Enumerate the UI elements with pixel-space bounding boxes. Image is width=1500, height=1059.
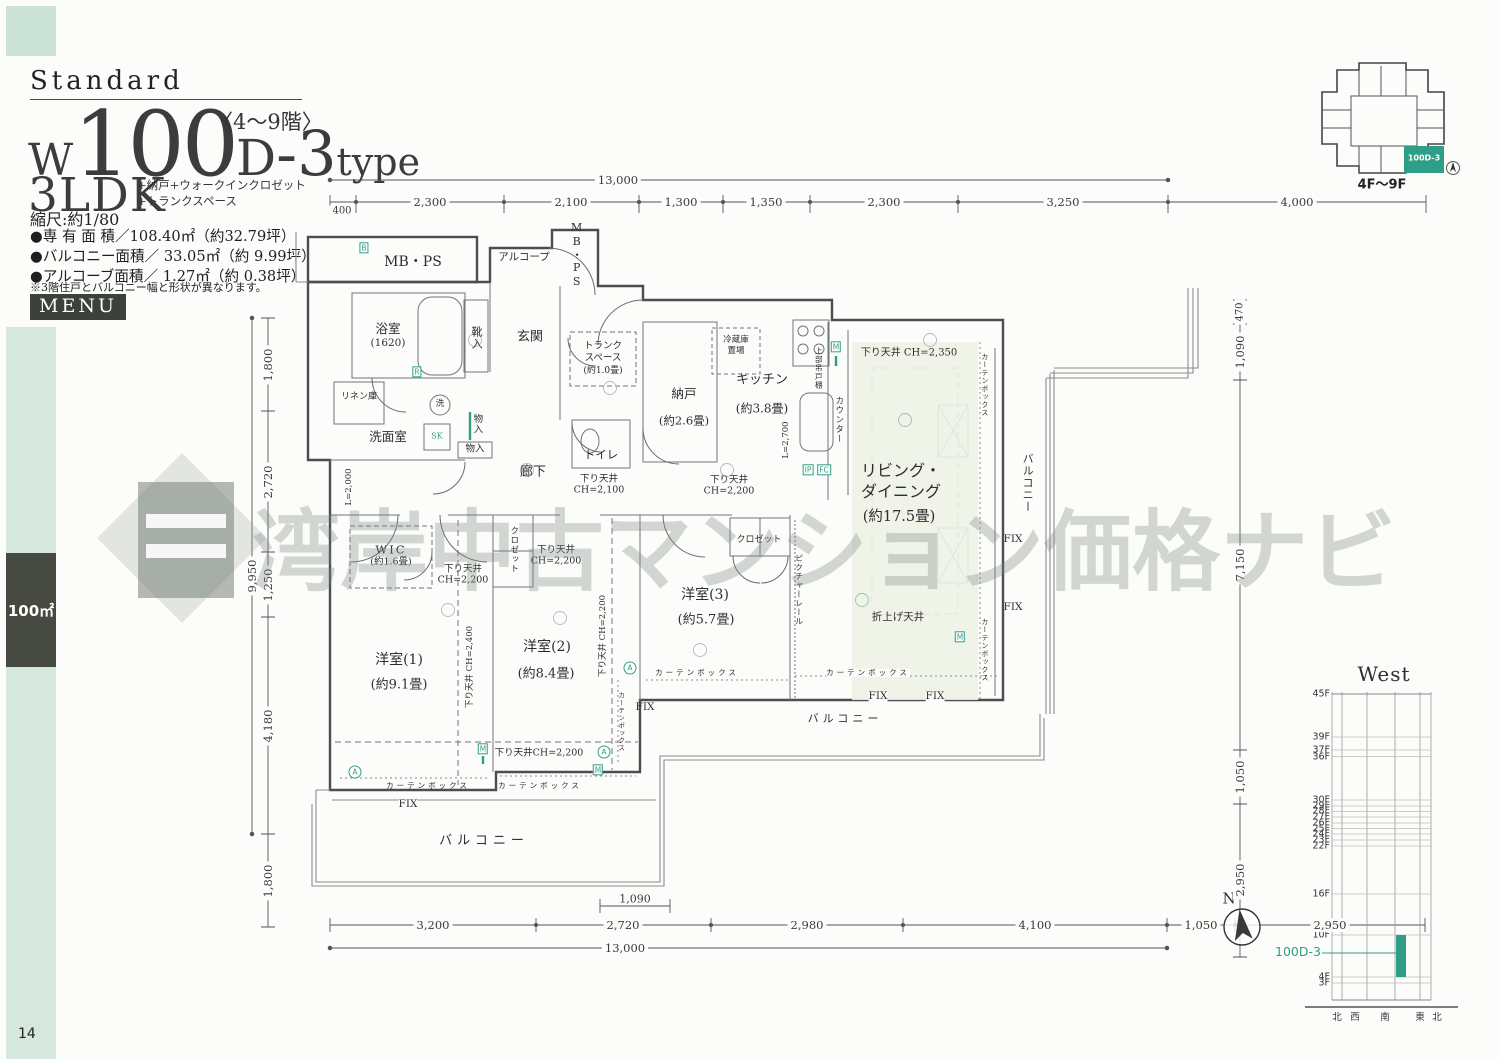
dim-left-1250: 1,250 [261,566,275,605]
dim-right-7150: 7,150 [1233,546,1247,585]
room-trunk-line1: トランク [584,342,622,353]
dim-left-2720: 2,720 [261,463,275,502]
dim-bottom-2720: 2,720 [604,918,643,932]
marker-m-3: M [478,743,488,754]
elevation-unit-label: 100D-3 [1275,945,1321,959]
room-bath-size: (1620) [371,338,406,350]
elevation-dir-south: 南 [1380,1009,1390,1023]
dim-bottom-3200: 3,200 [414,918,453,932]
closet-monoire-vertical: 物入 [471,414,482,435]
dim-top-total: 13,000 [595,173,641,187]
dim-left-9950: 9,950 [245,557,259,596]
room-powder: 洗面室 [369,430,407,444]
room-western3-size: (約5.7畳) [678,614,735,629]
dim-left-1800b: 1,800 [261,862,275,901]
room-toilet: トイレ [584,449,619,462]
picture-rail-label: ピクチャーレール [794,554,803,626]
drop-ceiling-2200a-l2: CH=2,200 [704,487,755,498]
room-western3: 洋室(3) [681,588,729,604]
menu-button[interactable]: MENU [30,294,126,320]
dim-right-470: 470 [1235,299,1246,324]
room-nando: 納戸 [671,387,696,401]
fix-label-6: FIX [1004,602,1023,614]
dim-bottom-2950: 2,950 [1311,918,1350,932]
elevation-dir-east: 東 [1415,1009,1425,1023]
dim-top-400: 400 [329,206,354,217]
balcony-label-bottom: バルコニー [439,835,529,850]
room-hall: 廊下 [520,466,546,481]
room-nando-size: (約2.6畳) [659,415,709,428]
curtain-box-4: カーテンボックス [826,669,910,677]
room-trunk-size: (約1.0畳) [583,366,622,376]
marker-ip: IP [803,464,814,475]
marker-a-3: A [598,746,611,759]
fix-label-3: FIX [869,691,888,703]
marker-b: B [359,242,368,253]
dim-bottom-1050: 1,050 [1182,918,1221,932]
fix-label-4: FIX [926,691,945,703]
dim-bottom-total: 13,000 [602,941,648,955]
dim-top-1350: 1,350 [747,195,786,209]
curtain-box-5: カーテンボックス [980,353,988,417]
dim-bottom-1090: 1,090 [616,893,654,906]
page-number: 14 [18,1026,36,1042]
dim-right-1050: 1,050 [1233,758,1247,797]
brochure-page: 100㎡ 14 Standard W100D-3type 〈4〜9階〉 3LDK… [0,0,1500,1059]
drop-ceiling-2200b-l2: CH=2,200 [438,576,489,587]
room-mbps-left: MB・PS [384,255,442,271]
curtain-box-7: カーテンボックス [616,692,623,752]
sidebar-size-label: 100㎡ [8,600,54,621]
elevation-floor-45f: 45F [1312,689,1330,700]
dim-top-2300b: 2,300 [865,195,904,209]
fridge-line1: 冷蔵庫 [723,336,749,346]
elevation-dir-north2: 北 [1432,1009,1442,1023]
drop-ceiling-2400-vertical: 下り天井 CH=2,400 [466,626,476,708]
room-trunk-line2: スペース [585,354,622,365]
fix-label-2: FIX [636,702,655,714]
room-western1: 洋室(1) [375,653,423,669]
dim-top-2100: 2,100 [552,195,591,209]
dim-left-1800a: 1,800 [261,346,275,385]
dim-left-4180: 4,180 [261,707,275,746]
elevation-floor-22f: 22F [1312,841,1330,852]
closet-monoire: 物入 [465,445,484,456]
floorplan-linework [0,0,1500,1059]
marker-m-2: M [955,631,965,642]
room-linen: リネン庫 [341,392,377,402]
upper-cabinet-label: 上部吊戸棚 [814,347,822,390]
room-living-line2: ダイニング [861,483,941,501]
dim-top-1300: 1,300 [662,195,701,209]
fix-label-1: FIX [399,799,418,811]
room-alcove: アルコープ [498,252,550,264]
washer-symbol: 洗 [436,400,445,410]
balcony-label-center: バルコニー [808,713,883,725]
counter-label: カウンター [833,396,843,444]
marker-fc: FC [817,464,831,475]
locator-floor-range: 4F〜9F [1358,179,1407,194]
dim-bottom-2980: 2,980 [788,918,827,932]
balcony-label-right: バルコニー [1021,453,1033,513]
marker-r: R [412,366,421,377]
l2000-label: L=2,000 [345,468,355,505]
dim-right-1090: 1,090 [1233,333,1247,372]
fix-label-5: FIX [1004,534,1023,546]
room-mbps-center: MB・PS [570,221,582,289]
elevation-dir-west: 西 [1350,1009,1360,1023]
locator-unit-label: 100D-3 [1408,155,1440,164]
room-wic-size: (約1.6畳) [370,558,412,569]
room-living-line1: リビング・ [861,462,941,480]
elevation-floor-16f: 16F [1312,889,1330,900]
drop-ceiling-2100-l2: CH=2,100 [574,486,625,497]
sidebar-size-badge[interactable]: 100㎡ [6,553,56,667]
dim-bottom-4100: 4,100 [1016,918,1055,932]
room-wic: WIC [375,544,406,557]
room-bath: 浴室 [375,322,400,336]
sk-symbol: SK [431,433,442,442]
marker-m-4: M [593,764,603,775]
drop-ceiling-2200-vertical: 下り天井 CH=2,200 [599,595,609,677]
elevation-floor-3f: 3F [1318,978,1330,989]
elevation-floor-36f: 36F [1312,752,1330,763]
elevation-title: West [1357,663,1410,685]
curtain-box-3: カーテンボックス [655,669,739,677]
drop-ceiling-2200-bottom: 下り天井CH=2,200 [495,749,584,760]
fridge-line2: 置場 [727,347,744,357]
elevation-floor-39f: 39F [1312,732,1330,743]
dim-top-2300a: 2,300 [411,195,450,209]
drop-ceiling-2350: 下り天井 CH=2,350 [861,347,958,358]
curtain-box-2: カーテンボックス [498,782,582,790]
closet-y2-label: クロゼット [508,526,518,574]
room-western2-size: (約8.4畳) [518,668,575,683]
l2700-label: L=2,700 [782,421,792,458]
room-kitchen: キッチン [736,374,788,389]
dim-top-4000: 4,000 [1278,195,1317,209]
room-entrance: 玄関 [517,331,543,346]
closet-y3-label: クロゼット [736,535,781,545]
dim-right-2950: 2,950 [1233,861,1247,900]
marker-a-2: A [624,662,637,675]
elevation-dir-north1: 北 [1332,1009,1342,1023]
drop-ceiling-2200c-l2: CH=2,200 [531,557,582,568]
room-living-size: (約17.5畳) [863,509,936,525]
raised-ceiling-label: 折上げ天井 [872,612,925,624]
dim-top-3250: 3,250 [1044,195,1083,209]
marker-a-1: A [349,766,362,779]
room-western2: 洋室(2) [523,640,571,656]
room-shoes: 靴入 [470,326,482,350]
room-western1-size: (約9.1畳) [371,679,428,694]
room-kitchen-size: (約3.8畳) [736,402,788,415]
curtain-box-6: カーテンボックス [980,618,988,682]
curtain-box-1: カーテンボックス [386,782,470,790]
marker-m-1: M [831,341,841,352]
